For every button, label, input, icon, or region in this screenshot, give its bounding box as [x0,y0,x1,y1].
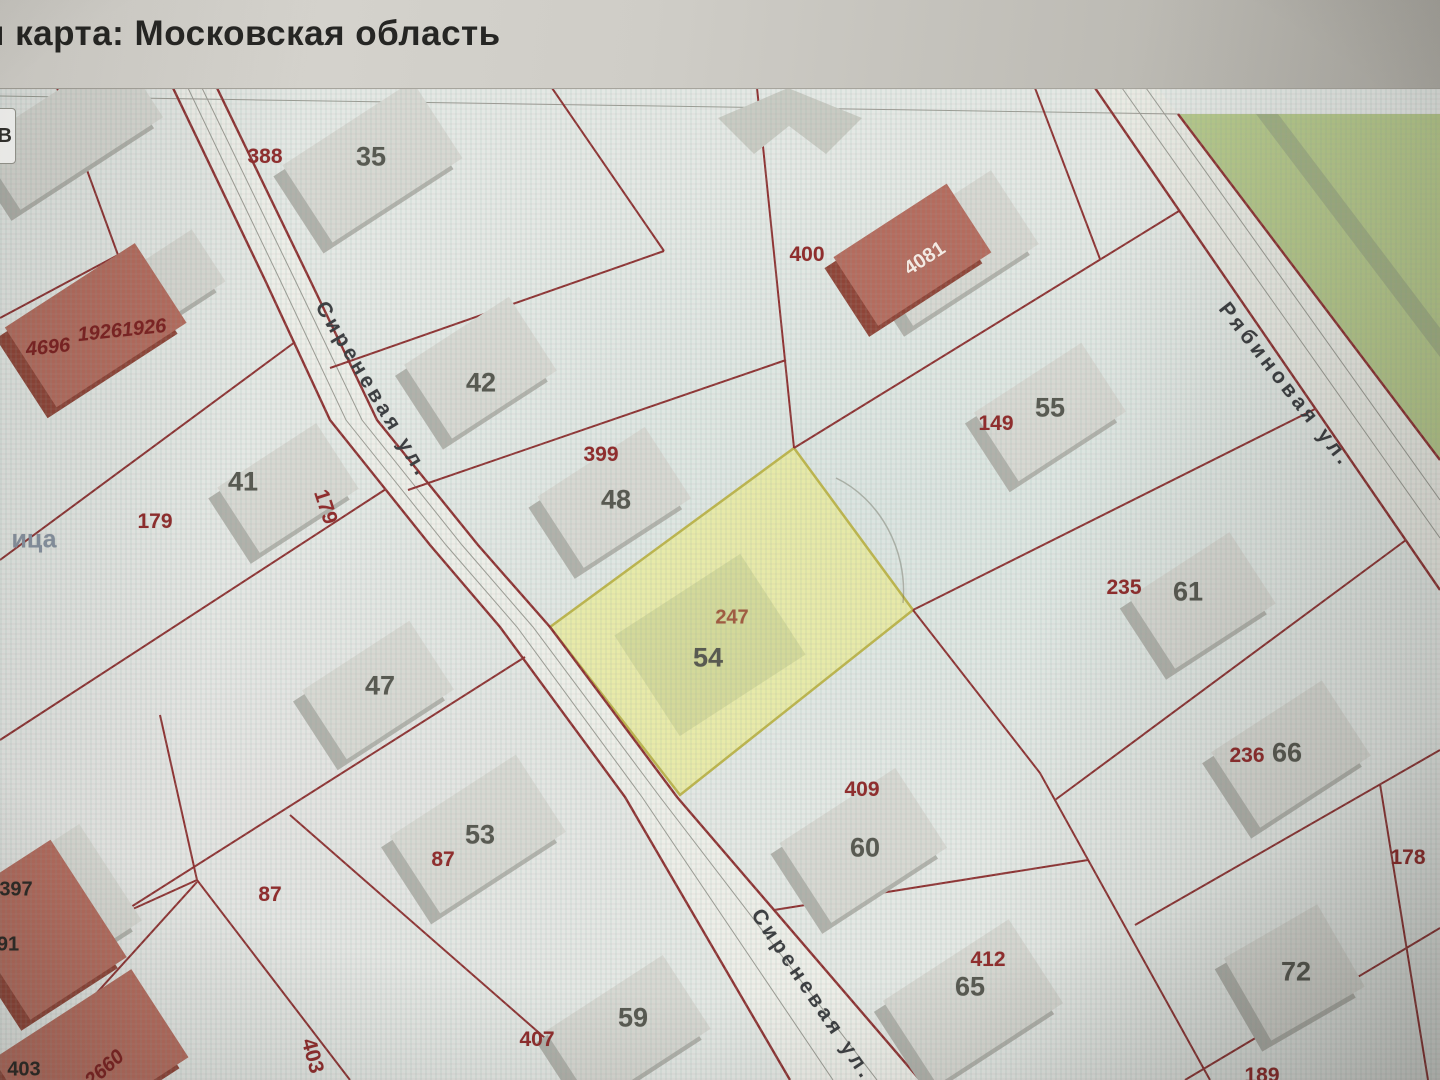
building-number-65: 65 [955,972,985,1003]
map-labels-layer: 3884003991492352361781791798787403407409… [0,88,1440,1080]
building-number-41: 41 [228,467,258,498]
parcel-number-247-selected: 247 [715,607,748,630]
page-title: я карта: Московская область [0,14,501,54]
street-label-ryabinovaya: Рябиновая ул. [1213,298,1356,472]
building-number-42: 42 [466,368,496,399]
building-number-59: 59 [618,1003,648,1034]
parcel-number-178: 178 [1390,846,1425,870]
page-header: я карта: Московская область [0,0,1440,89]
building-number-55: 55 [1035,393,1065,424]
parcel-number-91: 91 [0,934,19,957]
building-number-54-selected: 54 [693,643,723,674]
building-number-60: 60 [850,833,880,864]
parcel-number-149: 149 [978,412,1013,436]
parcel-number-399: 399 [583,443,618,467]
parcel-number-87-left: 87 [258,883,281,907]
building-number-48: 48 [601,485,631,516]
map-canvas[interactable]: 3884003991492352361781791798787403407409… [0,88,1440,1080]
parcel-number-19261926: 19261926 [77,315,168,347]
building-number-66: 66 [1272,738,1302,769]
parcel-number-87-right: 87 [431,848,454,872]
building-number-53: 53 [465,820,495,851]
parcel-number-179-rotated: 179 [308,487,342,528]
map-control-label: В [0,125,12,148]
parcel-number-407: 407 [519,1028,554,1052]
parcel-number-403-rotated: 403 [296,1036,328,1076]
parcel-number-409: 409 [844,778,879,802]
parcel-number-236: 236 [1229,744,1264,768]
parcel-number-403-corner: 403 [7,1059,40,1080]
parcel-number-397: 397 [0,879,33,902]
building-number-35: 35 [356,142,386,173]
building-number-72: 72 [1281,957,1311,988]
parcel-number-388: 388 [247,145,282,169]
parcel-number-189: 189 [1244,1064,1279,1080]
map-control-partial[interactable]: В [0,108,16,164]
parcel-number-179: 179 [137,510,172,534]
parcel-number-412: 412 [970,948,1005,972]
parcel-number-400: 400 [789,243,824,267]
cadastral-map-page: я карта: Московская область [0,0,1440,1080]
street-label-sirenevaya-lower: Сиреневая ул. [746,905,879,1080]
street-label-partial-itsa: ица [12,526,57,555]
street-label-sirenevaya-upper: Сиреневая ул. [310,297,435,482]
building-number-2660: 2660 [81,1046,129,1080]
building-number-47: 47 [365,671,395,702]
building-number-61: 61 [1173,577,1203,608]
parcel-number-235: 235 [1106,576,1141,600]
parcel-number-4696: 4696 [25,334,72,362]
building-number-4081: 4081 [900,237,950,281]
